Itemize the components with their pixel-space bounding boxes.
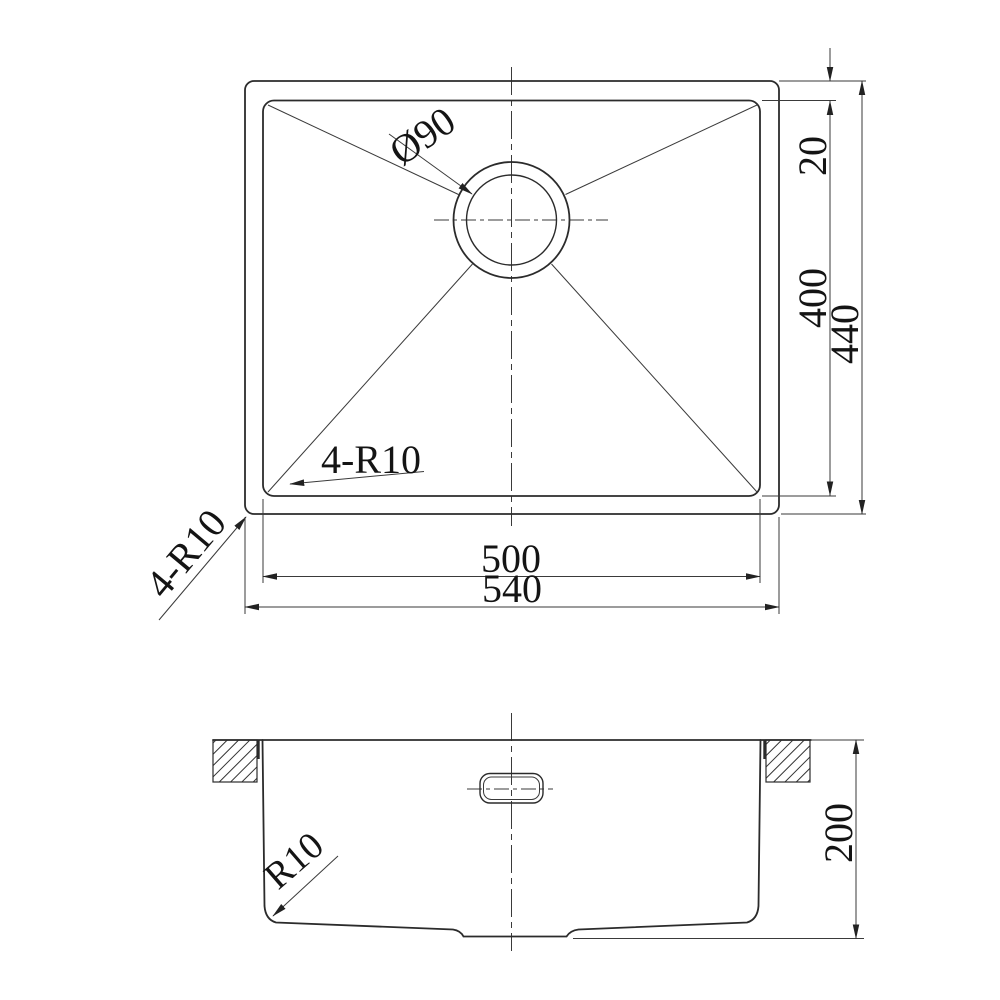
drawing-sheet: Ø90 4-R10 4-R10 20 400 440 500 540 bbox=[0, 0, 1000, 1000]
dim-rim-offset: 20 bbox=[790, 136, 835, 176]
crease-line-top-right bbox=[566, 105, 758, 195]
dim-overall-width: 540 bbox=[482, 566, 542, 611]
mounting-clip-right bbox=[766, 740, 810, 782]
front-view: 200 R10 bbox=[213, 713, 864, 951]
dim-drain-diameter: Ø90 bbox=[381, 98, 463, 174]
crease-line-bottom-right bbox=[552, 264, 758, 492]
note-inner-corner-radius: 4-R10 bbox=[321, 437, 421, 482]
note-bottom-corner-radius: R10 bbox=[256, 824, 331, 897]
dim-overall-length: 440 bbox=[822, 304, 867, 364]
top-view: Ø90 4-R10 4-R10 20 400 440 500 540 bbox=[136, 48, 867, 620]
mounting-clip-left bbox=[213, 740, 257, 782]
note-outer-corner-radius: 4-R10 bbox=[136, 501, 235, 607]
technical-drawing-svg: Ø90 4-R10 4-R10 20 400 440 500 540 bbox=[0, 0, 1000, 1000]
dim-depth: 200 bbox=[816, 803, 861, 863]
